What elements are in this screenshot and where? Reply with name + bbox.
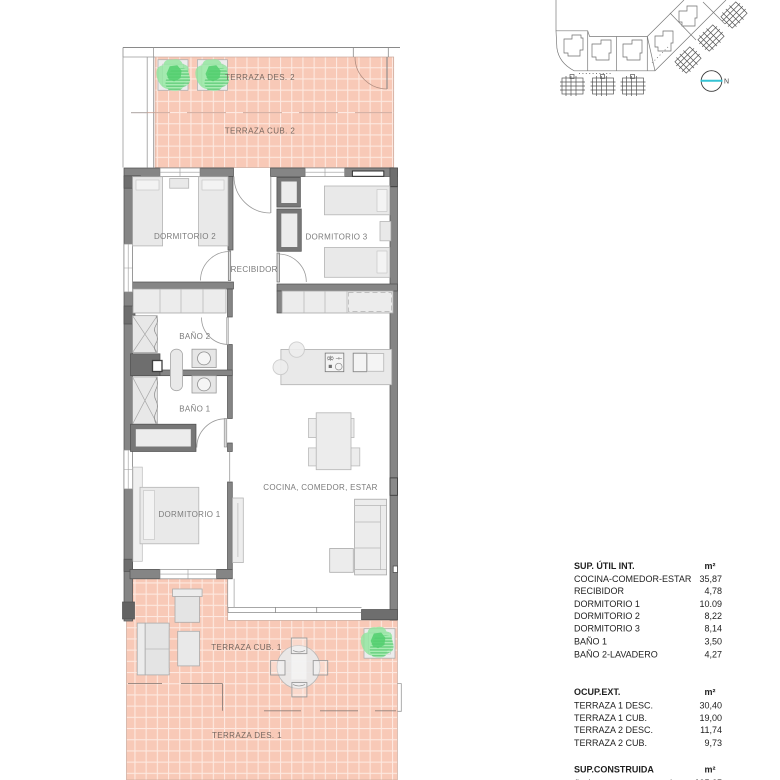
svg-text:DORMITORIO 3: DORMITORIO 3: [305, 233, 367, 242]
svg-text:10.09: 10.09: [699, 599, 722, 609]
svg-text:30,40: 30,40: [699, 701, 722, 711]
svg-text:3,50: 3,50: [704, 637, 722, 647]
svg-text:m²: m²: [705, 765, 716, 775]
svg-text:BAÑO 1: BAÑO 1: [179, 405, 210, 414]
svg-text:TERRAZA CUB. 1: TERRAZA CUB. 1: [211, 643, 282, 652]
svg-text:TERRAZA 2 DESC.: TERRAZA 2 DESC.: [574, 725, 653, 735]
svg-text:BAÑO 1: BAÑO 1: [574, 637, 607, 647]
svg-text:8,14: 8,14: [704, 624, 722, 634]
svg-text:TERRAZA 1 DESC.: TERRAZA 1 DESC.: [574, 701, 653, 711]
svg-text:DORMITORIO 2: DORMITORIO 2: [154, 232, 216, 241]
svg-text:11,74: 11,74: [700, 725, 722, 735]
svg-text:COCINA, COMEDOR, ESTAR: COCINA, COMEDOR, ESTAR: [263, 483, 377, 492]
svg-text:BAÑO 2: BAÑO 2: [179, 332, 210, 341]
svg-text:TERRAZA 1 CUB.: TERRAZA 1 CUB.: [574, 713, 647, 723]
svg-text:SUP. ÚTIL INT.: SUP. ÚTIL INT.: [574, 560, 635, 571]
svg-text:RECIBIDOR: RECIBIDOR: [574, 586, 625, 596]
svg-text:DORMITORIO 1: DORMITORIO 1: [158, 510, 220, 519]
svg-text:35,87: 35,87: [699, 574, 722, 584]
svg-text:RECIBIDOR: RECIBIDOR: [231, 265, 278, 274]
svg-text:19,00: 19,00: [699, 713, 722, 723]
svg-text:BAÑO 2-LAVADERO: BAÑO 2-LAVADERO: [574, 650, 658, 660]
svg-text:N: N: [724, 79, 729, 86]
svg-text:9,73: 9,73: [704, 738, 722, 748]
svg-text:DORMITORIO 3: DORMITORIO 3: [574, 624, 640, 634]
svg-text:DORMITORIO 2: DORMITORIO 2: [574, 611, 640, 621]
svg-text:DORMITORIO 1: DORMITORIO 1: [574, 599, 640, 609]
svg-text:TERRAZA CUB. 2: TERRAZA CUB. 2: [225, 127, 296, 136]
svg-text:TERRAZA DES. 2: TERRAZA DES. 2: [225, 73, 295, 82]
svg-text:4,27: 4,27: [704, 650, 722, 660]
svg-text:m²: m²: [705, 687, 716, 697]
svg-text:SUP.CONSTRUIDA: SUP.CONSTRUIDA: [574, 765, 654, 775]
svg-text:m²: m²: [705, 561, 716, 571]
svg-text:OCUP.EXT.: OCUP.EXT.: [574, 687, 620, 697]
svg-text:TERRAZA DES. 1: TERRAZA DES. 1: [212, 731, 282, 740]
svg-text:4,78: 4,78: [704, 586, 722, 596]
svg-text:COCINA-COMEDOR-ESTAR: COCINA-COMEDOR-ESTAR: [574, 574, 692, 584]
svg-text:8,22: 8,22: [704, 611, 722, 621]
svg-text:TERRAZA 2 CUB.: TERRAZA 2 CUB.: [574, 738, 647, 748]
